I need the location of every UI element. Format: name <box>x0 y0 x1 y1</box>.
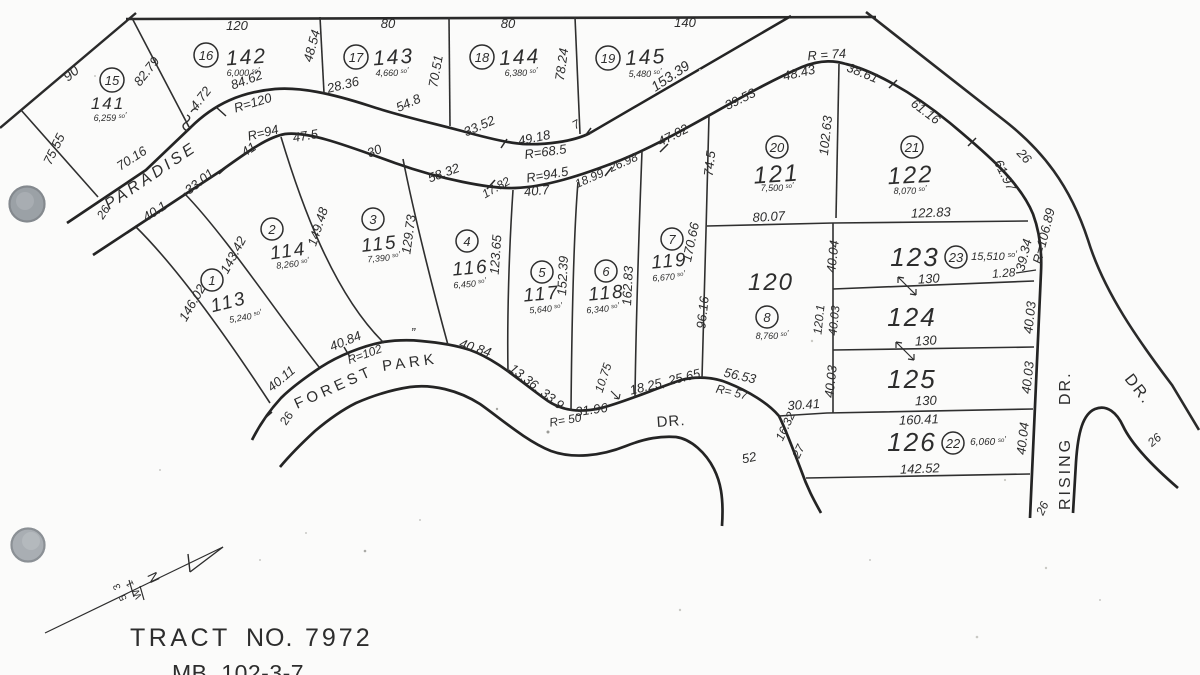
svg-text:122.83: 122.83 <box>911 204 952 220</box>
svg-text:130: 130 <box>915 332 938 348</box>
svg-text:RISING: RISING <box>1057 437 1074 510</box>
svg-text:16: 16 <box>199 48 214 63</box>
svg-text:40.7: 40.7 <box>523 182 550 199</box>
svg-text:130: 130 <box>918 270 941 286</box>
svg-text:7: 7 <box>668 232 676 247</box>
svg-text:123: 123 <box>890 242 939 272</box>
svg-text:142: 142 <box>225 45 268 71</box>
svg-text:19: 19 <box>601 51 615 66</box>
svg-text:126: 126 <box>887 427 936 457</box>
svg-text:130: 130 <box>915 393 938 409</box>
svg-text:123.65: 123.65 <box>487 234 505 275</box>
svg-text:6: 6 <box>602 264 610 279</box>
svg-text:118: 118 <box>588 281 626 305</box>
svg-text:20: 20 <box>769 140 785 155</box>
svg-text:DR.: DR. <box>1057 371 1074 405</box>
svg-text:1.28: 1.28 <box>992 265 1017 281</box>
svg-text:80: 80 <box>381 16 396 31</box>
svg-text:DR.: DR. <box>656 412 686 431</box>
svg-text:2: 2 <box>267 222 276 237</box>
svg-text:8: 8 <box>763 310 771 325</box>
svg-text:144: 144 <box>499 45 541 70</box>
svg-text:120: 120 <box>226 18 248 33</box>
svg-text:21: 21 <box>904 140 919 155</box>
svg-text:143: 143 <box>372 45 415 71</box>
svg-text:22: 22 <box>945 436 961 451</box>
svg-text:R = 74: R = 74 <box>807 46 847 64</box>
svg-text:”: ” <box>411 325 416 340</box>
svg-text:141: 141 <box>91 94 125 113</box>
svg-text:30.41: 30.41 <box>787 396 821 413</box>
svg-text:120: 120 <box>748 269 794 296</box>
svg-text:160.41: 160.41 <box>899 411 939 427</box>
svg-text:80: 80 <box>501 16 516 31</box>
svg-text:74.5: 74.5 <box>701 149 719 176</box>
svg-text:7972: 7972 <box>305 624 373 652</box>
svg-text:80.07: 80.07 <box>752 208 786 225</box>
svg-text:17: 17 <box>349 50 364 65</box>
svg-text:4: 4 <box>463 234 470 249</box>
svg-text:TRACT: TRACT <box>130 624 231 652</box>
svg-text:3: 3 <box>369 212 377 227</box>
svg-text:1: 1 <box>208 273 215 288</box>
svg-text:MB. 102-3-7: MB. 102-3-7 <box>172 660 304 675</box>
svg-text:125: 125 <box>887 364 936 394</box>
svg-text:18: 18 <box>475 50 490 65</box>
svg-text:NO.: NO. <box>246 624 293 652</box>
svg-text:15: 15 <box>105 73 120 88</box>
svg-text:124: 124 <box>887 302 936 332</box>
svg-text:117: 117 <box>523 282 561 306</box>
svg-text:142.52: 142.52 <box>900 460 941 476</box>
svg-text:5: 5 <box>538 265 546 280</box>
svg-text:23: 23 <box>948 250 964 265</box>
svg-text:140: 140 <box>674 15 696 30</box>
